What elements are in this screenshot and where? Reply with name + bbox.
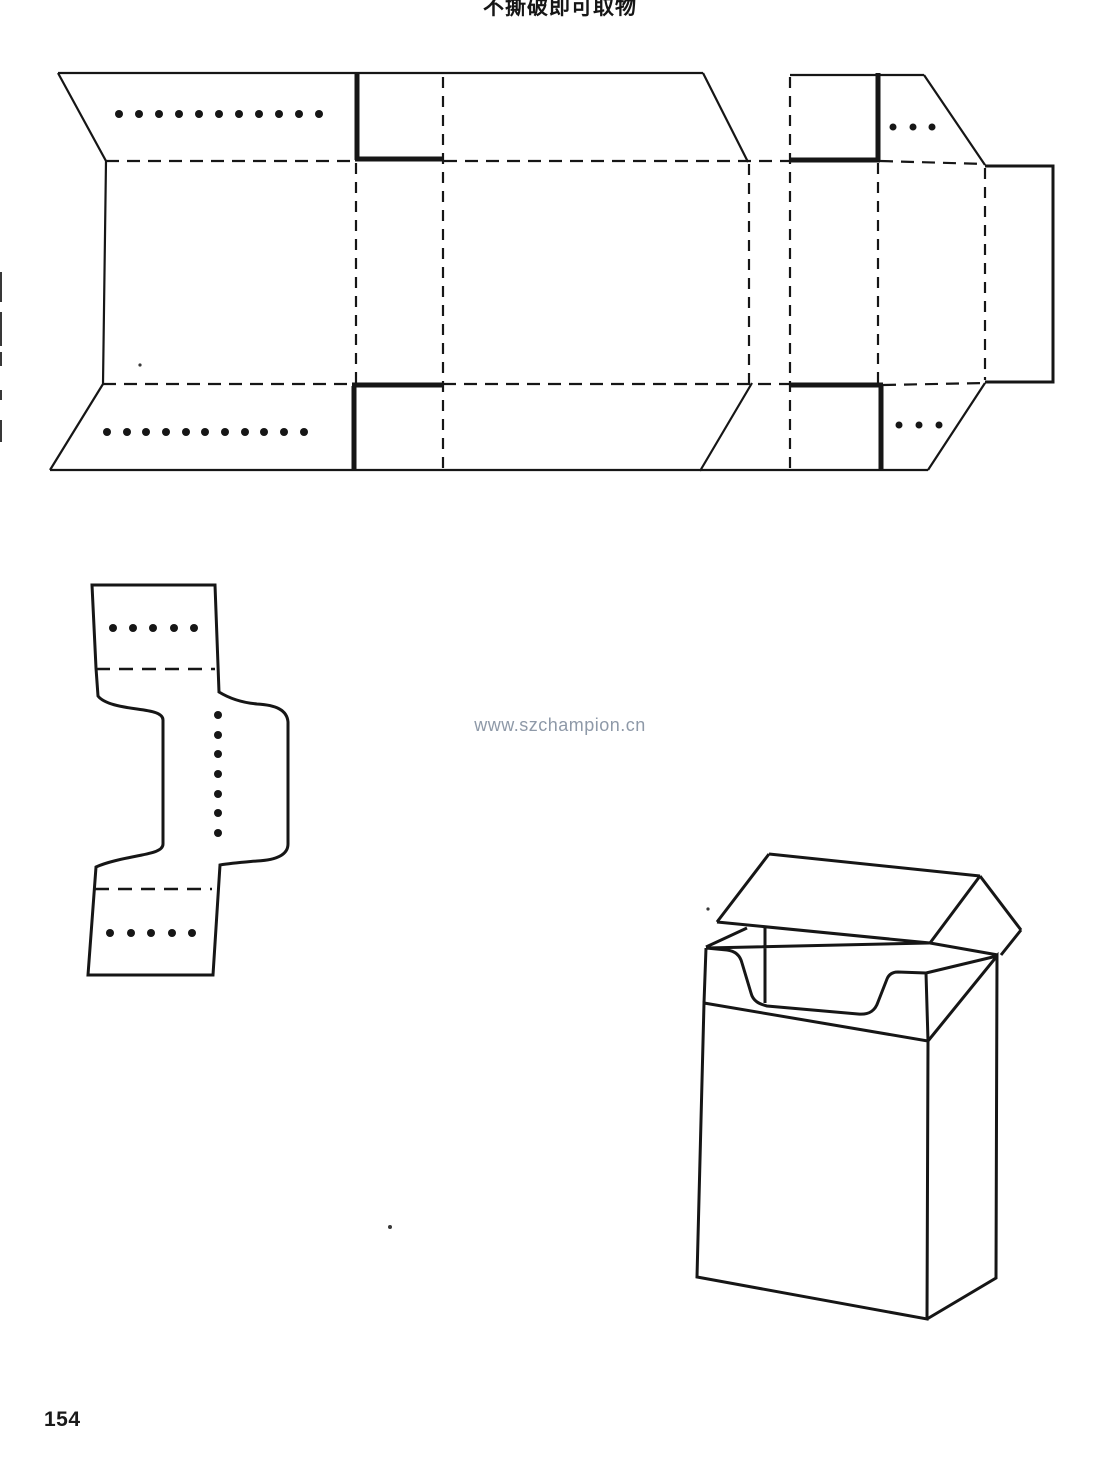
box-lid <box>706 854 1021 955</box>
box-outer-shell <box>697 956 997 1319</box>
main-dieline <box>50 73 1053 471</box>
inner-frame-outline <box>88 585 288 975</box>
perforation-dots-bottom-right-flap <box>896 422 943 429</box>
fold-lines-horizontal <box>103 161 985 385</box>
inner-frame-dots-bottom <box>106 929 196 937</box>
inner-frame-dots-top <box>109 624 198 632</box>
perforation-dots-bottom-row <box>103 428 308 436</box>
glue-tab-outline <box>985 166 1053 382</box>
perforation-dots-top-right-flap <box>890 124 936 131</box>
perforation-dots-top-row <box>115 110 323 118</box>
tear-slot-edges <box>352 73 883 470</box>
dieline-diagrams <box>0 0 1120 1472</box>
box-inner-liner <box>704 926 997 1041</box>
inner-frame-dieline <box>88 585 288 975</box>
inner-frame-fold-lines <box>95 669 215 889</box>
dieline-outline <box>50 73 985 471</box>
fold-lines-vertical <box>356 77 985 470</box>
page-number: 154 <box>44 1408 81 1432</box>
watermark-text: www.szchampion.cn <box>0 715 1120 736</box>
scanned-book-page: 不撕破即可取物 <box>0 0 1120 1472</box>
assembled-box <box>697 854 1021 1319</box>
